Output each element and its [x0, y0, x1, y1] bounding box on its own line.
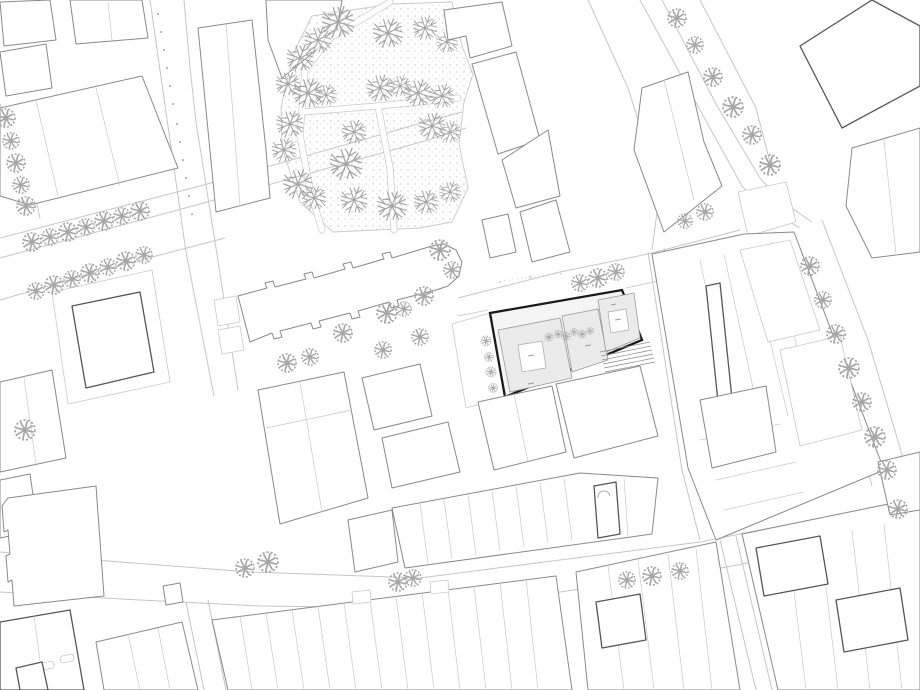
block-east [652, 232, 884, 540]
block-park-east [444, 2, 570, 262]
park [272, 2, 473, 232]
kiosk [163, 583, 183, 605]
church-building [214, 240, 462, 372]
site-plan-svg: ▵··◦·◦·∩◦·◦··◦▵ [0, 0, 920, 690]
street-name-microtext: ▵··◦·◦·∩◦·◦··◦▵ [499, 271, 565, 285]
zigzag-building [2, 486, 104, 606]
courtyard-east [608, 309, 629, 333]
arched-house [594, 482, 620, 538]
site-plan-canvas: ▵··◦·◦·∩◦·◦··◦▵ [0, 0, 920, 690]
bold-building-top-right [800, 0, 920, 128]
tree-row-upper-left-1 [23, 202, 149, 251]
block-top-right [634, 0, 920, 258]
courtyard-west [518, 341, 546, 372]
